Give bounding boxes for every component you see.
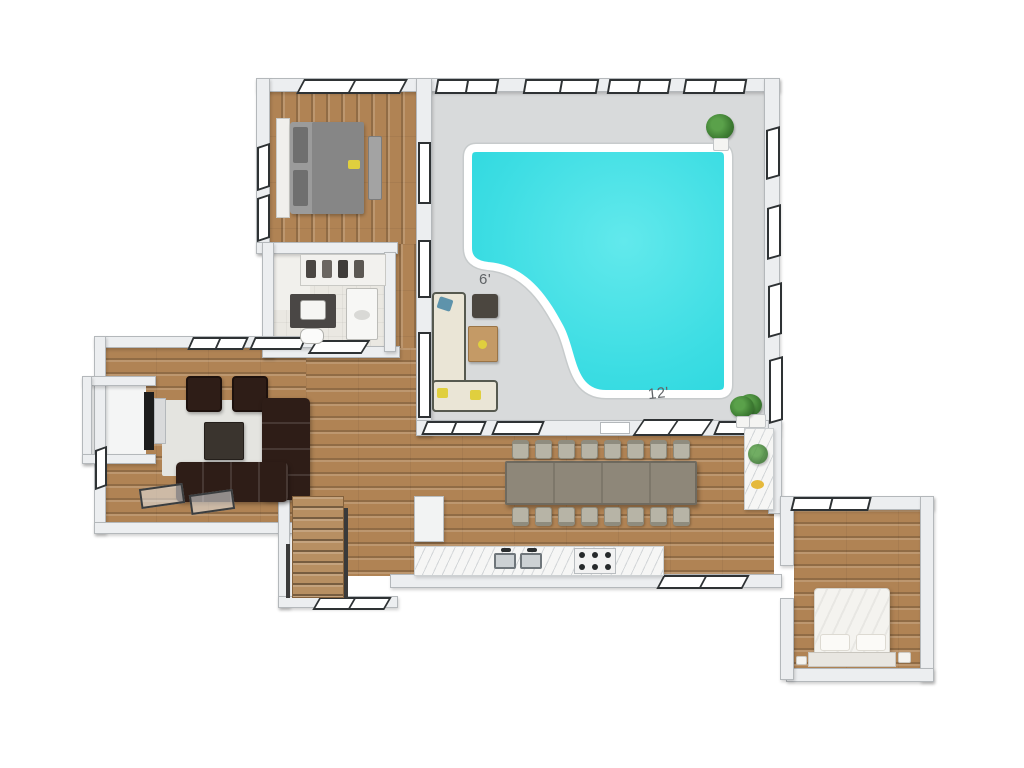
- bed1-headboard: [276, 118, 290, 218]
- bed1-pillow-2: [293, 170, 308, 206]
- wall-bedroom1-bath-divider: [256, 242, 398, 254]
- cooktop: [574, 548, 616, 574]
- dining-chair: [627, 440, 644, 459]
- refrigerator: [414, 496, 444, 542]
- stair-railing-left: [286, 544, 290, 598]
- wall-bedroom2-bottom: [786, 668, 934, 682]
- dining-chair: [512, 440, 529, 459]
- window-bedroom1-top: [296, 79, 408, 94]
- window-pool-right-2: [767, 204, 781, 260]
- window-living-top-2: [249, 337, 307, 350]
- dining-chair: [535, 507, 552, 526]
- lounge-pillow-yellow-2: [470, 390, 481, 400]
- window-bedroom2-top: [790, 497, 871, 511]
- hall-junction-floor: [306, 348, 418, 434]
- dining-chair: [673, 507, 690, 526]
- partition-vent: [600, 422, 630, 434]
- window-pool-top-3: [607, 79, 672, 94]
- sliding-door-pool: [632, 419, 713, 436]
- tv-console: [154, 398, 166, 444]
- window-pool-top-4: [683, 79, 748, 94]
- wall-bedroom2-left-lower: [780, 598, 794, 680]
- bed2-pillow-2: [856, 634, 886, 651]
- closet-clothes-2: [322, 260, 332, 278]
- window-partition-1: [421, 421, 487, 435]
- bath-sink: [300, 300, 326, 320]
- bed1-pillow-1: [293, 127, 308, 163]
- toilet: [300, 328, 324, 344]
- bed1-bench: [368, 136, 382, 200]
- dining-chair: [673, 440, 690, 459]
- wall-niche-left: [82, 376, 92, 464]
- pool-dimension-12ft: 12': [647, 384, 670, 403]
- dining-chair: [627, 507, 644, 526]
- console-fruit-bowl: [751, 480, 764, 489]
- wall-living-bottom: [94, 522, 308, 534]
- wall-living-left: [94, 336, 106, 534]
- window-pool-right-3: [768, 282, 782, 338]
- kitchen-sink-basin-2: [520, 553, 542, 569]
- entry-plant: [730, 396, 754, 418]
- bed1-accent-pillow: [348, 160, 360, 169]
- kitchen-sink-basin-1: [494, 553, 516, 569]
- tv-panel: [144, 392, 154, 450]
- window-pool-divider-2: [418, 240, 431, 298]
- pool-plant-top: [706, 114, 734, 140]
- bed2-headboard: [808, 652, 896, 667]
- window-pool-divider-3: [418, 332, 431, 418]
- window-living-left: [95, 446, 107, 490]
- window-pool-right-4: [769, 356, 783, 424]
- dining-chair: [558, 440, 575, 459]
- window-living-top-1: [187, 337, 249, 350]
- dining-chair: [535, 440, 552, 459]
- living-coffee-table: [204, 422, 244, 460]
- pool-water: [468, 148, 728, 394]
- window-kitchen-bottom: [656, 575, 749, 589]
- wall-niche-top: [82, 376, 156, 386]
- wall-bedroom2-right: [920, 496, 934, 682]
- pool-dimension-6ft: 6': [479, 271, 491, 288]
- armchair-1: [186, 376, 222, 412]
- stair-railing-right: [344, 508, 348, 598]
- kitchen-faucet-1: [501, 548, 511, 552]
- dining-chair: [512, 507, 529, 526]
- window-bedroom1-left-1: [257, 143, 270, 191]
- closet-clothes-1: [306, 260, 316, 278]
- lounge-pillow-yellow-1: [437, 388, 448, 398]
- marble-console: [744, 428, 774, 510]
- floor-plan-canvas: 6' 12': [0, 0, 1024, 768]
- pool-plant-top-pot: [713, 138, 729, 151]
- bath-washer-door: [354, 310, 370, 320]
- dining-chair: [558, 507, 575, 526]
- kitchen-faucet-2: [527, 548, 537, 552]
- window-pool-top-2: [523, 79, 600, 94]
- closet-clothes-4: [354, 260, 364, 278]
- dining-chair: [604, 507, 621, 526]
- staircase: [292, 496, 344, 598]
- wall-niche-bottom: [82, 454, 156, 464]
- window-partition-2: [491, 421, 545, 435]
- window-pool-right-1: [766, 126, 780, 180]
- dining-chair: [650, 507, 667, 526]
- entry-plant-pot: [736, 416, 750, 428]
- window-bedroom1-left-2: [257, 194, 270, 242]
- bed2-pillow-1: [820, 634, 850, 651]
- closet-clothes-3: [338, 260, 348, 278]
- window-pool-divider-1: [418, 142, 431, 204]
- lounge-table-bowl: [478, 340, 487, 349]
- bed2-slippers-left: [796, 656, 807, 665]
- dining-table: [505, 461, 697, 505]
- window-stairs-bottom: [312, 597, 392, 610]
- bed2-nightstand: [898, 652, 911, 663]
- dining-chair: [581, 440, 598, 459]
- lounge-ottoman: [472, 294, 498, 318]
- window-pool-top-1: [435, 79, 500, 94]
- dining-chair: [581, 507, 598, 526]
- console-plant: [748, 444, 768, 464]
- dining-chair: [604, 440, 621, 459]
- dining-chair: [650, 440, 667, 459]
